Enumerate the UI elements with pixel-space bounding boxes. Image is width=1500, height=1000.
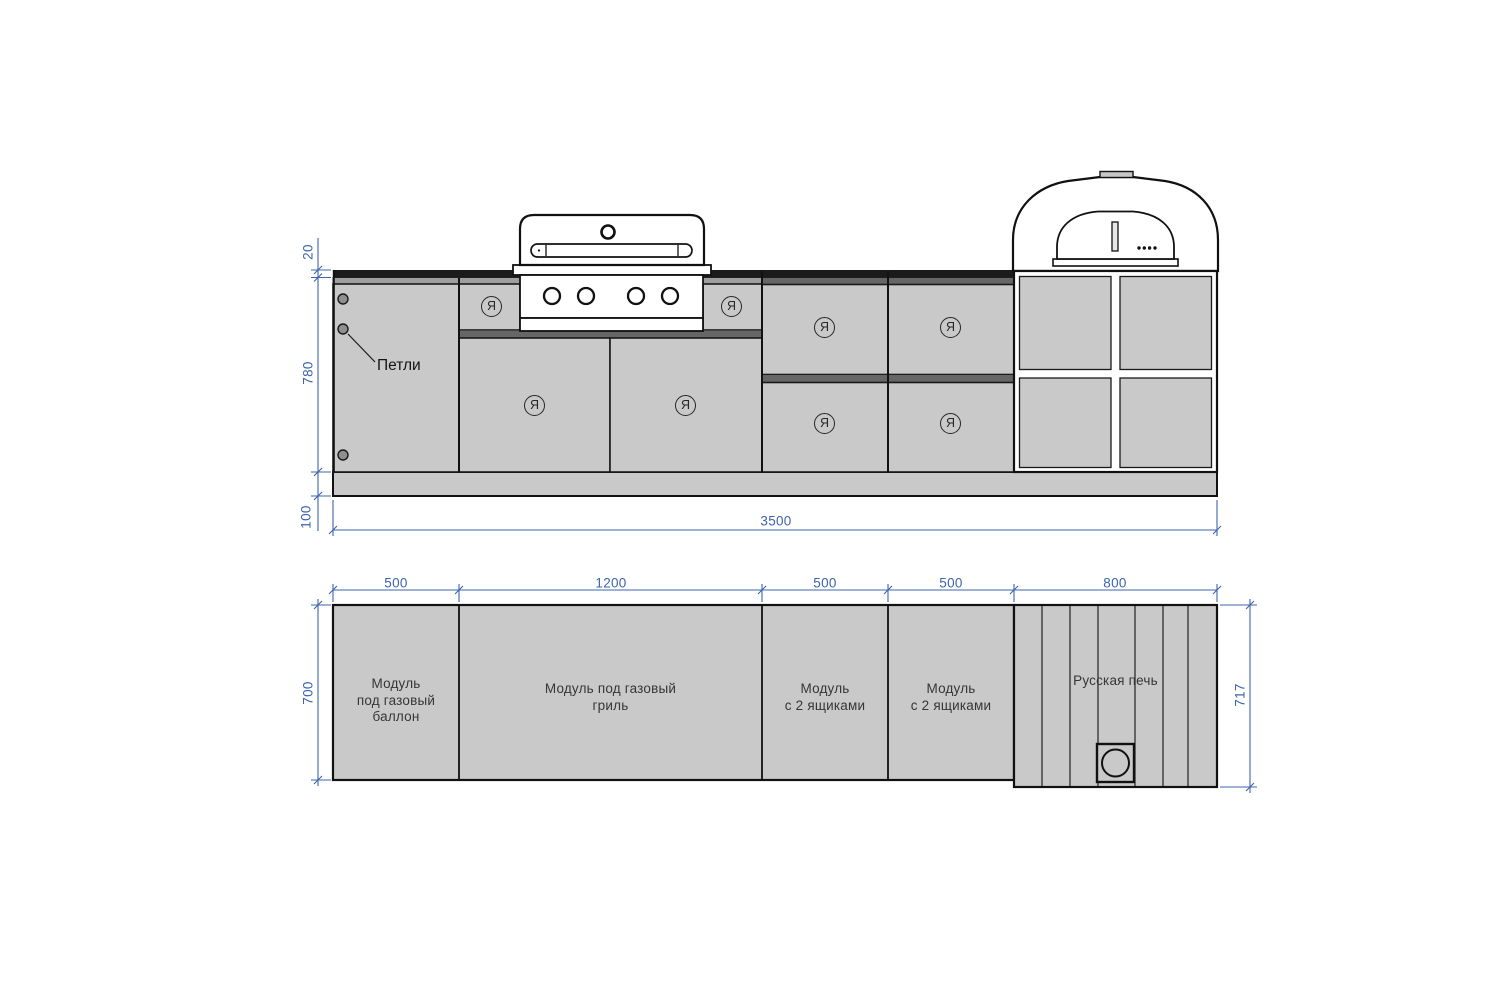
grill-lower-band — [520, 318, 703, 331]
module-label-line: гриль — [459, 698, 762, 715]
module-label-line: Модуль — [333, 676, 459, 693]
door-swing-marker: Я — [940, 413, 961, 434]
module-label-line: под газовый — [333, 693, 459, 710]
module-label-line: с 2 ящиками — [762, 698, 888, 715]
module-label-gas-grill: Модуль под газовый гриль — [459, 681, 762, 714]
hinge-dot — [338, 294, 348, 304]
stove-flue-circle — [1102, 750, 1129, 777]
dim-stove-depth: 717 — [1233, 683, 1248, 706]
module-label-russian-stove: Русская печь — [1014, 673, 1217, 690]
gas-grill — [513, 215, 711, 331]
module-label-line: баллон — [333, 709, 459, 726]
hinge-callout-label: Петли — [377, 357, 421, 375]
stove-chimney-cap — [1100, 172, 1133, 178]
module-label-gas-cylinder: Модуль под газовый баллон — [333, 676, 459, 726]
door-swing-marker: Я — [814, 413, 835, 434]
door-swing-marker: Я — [524, 395, 545, 416]
module-label-line: Модуль — [762, 681, 888, 698]
stove-panel — [1020, 277, 1112, 370]
module-label-line: Модуль под газовый — [459, 681, 762, 698]
dim-module-width-1: 500 — [384, 576, 407, 591]
stove-hearth-shelf — [1053, 259, 1178, 266]
door-swing-marker: Я — [940, 317, 961, 338]
door-swing-marker: Я — [721, 296, 742, 317]
dim-module-width-2: 1200 — [595, 576, 626, 591]
grill-knob — [544, 288, 560, 304]
module-label-drawers-1: Модуль с 2 ящиками — [762, 681, 888, 714]
drawing-geometry — [0, 0, 1500, 1000]
module-label-drawers-2: Модуль с 2 ящиками — [888, 681, 1014, 714]
module-label-line: с 2 ящиками — [888, 698, 1014, 715]
dim-plan-depth: 700 — [301, 681, 316, 704]
grill-knob — [578, 288, 594, 304]
elevation-view — [333, 172, 1218, 497]
grill-base-plate — [513, 265, 711, 275]
grill-handle — [531, 244, 692, 257]
door-swing-marker: Я — [814, 317, 835, 338]
door-swing-marker: Я — [675, 395, 696, 416]
door-swing-marker: Я — [481, 296, 502, 317]
grill-knob — [662, 288, 678, 304]
grill-knob — [628, 288, 644, 304]
stove-damper-slit — [1112, 222, 1118, 251]
technical-drawing-canvas: 20 780 100 3500 500 1200 500 500 800 700… — [0, 0, 1500, 1000]
dim-module-width-3: 500 — [813, 576, 836, 591]
dim-module-width-5: 800 — [1103, 576, 1126, 591]
module-label-line: Модуль — [888, 681, 1014, 698]
stove-panel — [1120, 277, 1212, 370]
hinge-dot — [338, 450, 348, 460]
dim-front-height: 780 — [301, 361, 316, 384]
drawer-module-2 — [888, 278, 1014, 473]
dim-module-width-4: 500 — [939, 576, 962, 591]
drawer-module-1 — [762, 278, 888, 473]
gas-cylinder-door — [333, 284, 459, 472]
dim-total-width: 3500 — [760, 514, 791, 529]
hinge-dot — [338, 324, 348, 334]
grill-thermometer-icon — [602, 226, 615, 239]
module-label-line: Русская печь — [1014, 673, 1217, 690]
stove-panel — [1120, 378, 1212, 468]
dim-countertop-thickness: 20 — [301, 244, 316, 260]
russian-stove-elevation — [1013, 172, 1218, 473]
dim-plinth-height: 100 — [299, 505, 314, 528]
stove-panel — [1020, 378, 1112, 468]
plinth — [333, 472, 1217, 496]
